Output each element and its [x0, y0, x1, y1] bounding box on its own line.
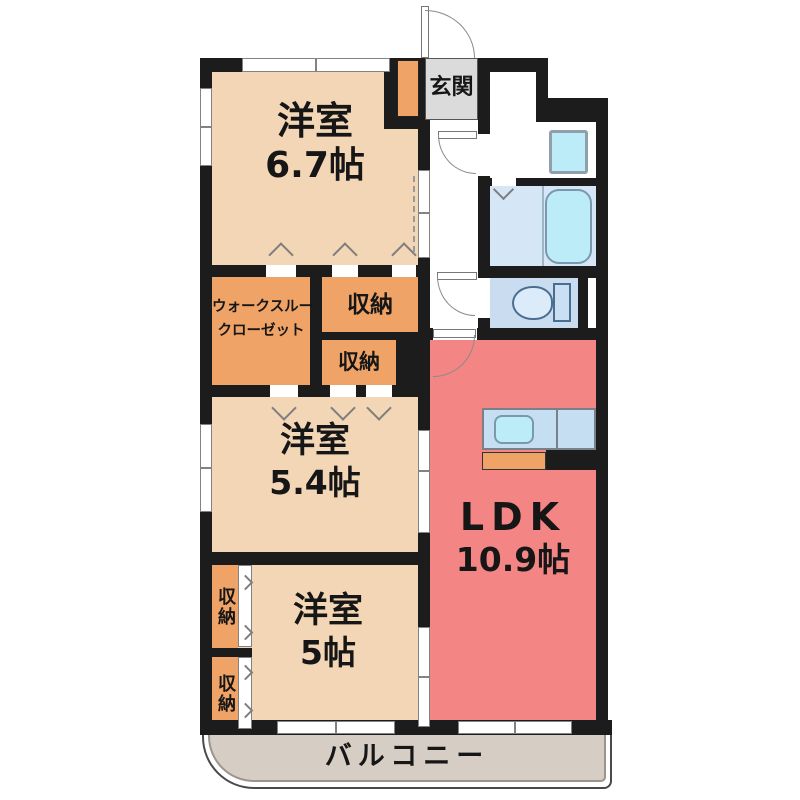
- bedroom3-size: 5帖: [238, 633, 418, 673]
- entrance-label: 玄関: [425, 75, 478, 102]
- storage3-label: 収納: [212, 569, 238, 645]
- kitchen-lower-counter: [482, 452, 546, 470]
- wall-step-horizontal: [536, 98, 608, 122]
- ldk-label: LDK 10.9帖: [430, 494, 596, 581]
- bedroom1-label: 洋室 6.7帖: [212, 98, 418, 188]
- sliding-door-tick: [418, 212, 430, 214]
- ldk-size: 10.9帖: [430, 540, 596, 580]
- window-tick: [335, 721, 337, 734]
- window-tick: [514, 721, 516, 734]
- bedroom1-name: 洋室: [212, 98, 418, 144]
- wall-bath-bottom: [490, 266, 596, 278]
- balcony-label: バルコニー: [325, 741, 489, 774]
- window-tick: [315, 58, 317, 72]
- washing-machine-pan-icon: [549, 130, 588, 174]
- bathtub-icon: [545, 189, 592, 264]
- bedroom1-size: 6.7帖: [212, 144, 418, 188]
- entrance-door-arc: [425, 10, 475, 58]
- window-tick: [200, 126, 212, 128]
- storage2-label: 収納: [322, 350, 396, 376]
- toilet-tank-icon: [553, 283, 571, 322]
- bedroom2-size: 5.4帖: [212, 463, 418, 503]
- wtc-line2: クローゼット: [212, 323, 310, 341]
- wall-toilet-right: [578, 278, 588, 328]
- wall-kitchen-stub: [546, 450, 596, 470]
- storage4-label: 収納: [212, 660, 238, 727]
- storage1-label: 収納: [322, 291, 418, 319]
- bedroom1-sliding-door: [418, 170, 430, 258]
- sliding-door-tick: [418, 470, 430, 472]
- window-tick: [200, 467, 212, 469]
- sliding-door-tick: [418, 676, 430, 678]
- bedroom3-label: 洋室 5帖: [238, 590, 418, 673]
- pipe-space: [588, 278, 596, 328]
- kitchen-counter-divider: [556, 408, 558, 450]
- walk-through-closet-label: ウォークスルー クローゼット: [212, 299, 310, 340]
- bedroom3-name: 洋室: [238, 590, 418, 633]
- wall-bedroom2-bottom: [200, 552, 430, 565]
- bedroom2-name: 洋室: [212, 420, 418, 463]
- bedroom2-label: 洋室 5.4帖: [212, 420, 418, 503]
- ldk-name: LDK: [430, 494, 596, 540]
- wall-wtc-bottom: [212, 385, 430, 397]
- toilet-door-opening: [478, 278, 490, 318]
- washroom-door-opening: [478, 134, 490, 176]
- bath-divider-line: [542, 186, 544, 266]
- wtc-line1: ウォークスルー: [212, 299, 310, 317]
- kitchen-sink-icon: [494, 415, 534, 444]
- floor-plan: バルコニー 洋室 6.7帖 玄関 ウォークスルー クローゼット 収納 収納 洋室…: [0, 0, 800, 800]
- balcony: バルコニー: [202, 735, 612, 789]
- wall-right: [596, 98, 608, 735]
- toilet-icon: [512, 286, 553, 320]
- bedroom2-sliding-door: [418, 430, 430, 533]
- wall-wtc-right: [310, 277, 322, 385]
- balcony-deck: バルコニー: [208, 735, 606, 782]
